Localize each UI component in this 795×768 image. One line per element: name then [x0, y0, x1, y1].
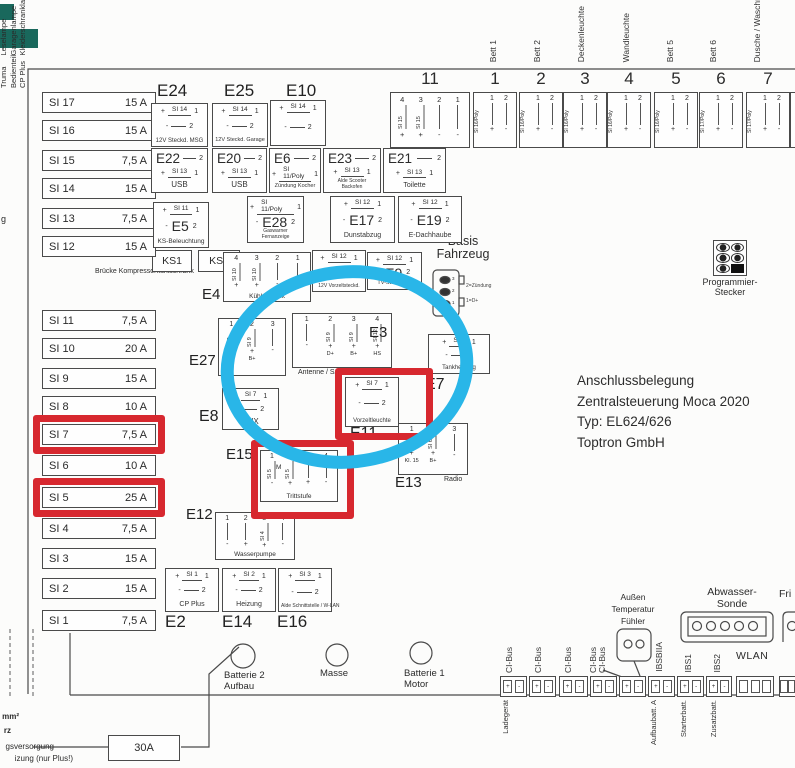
e-box-label-E15: E15: [226, 446, 253, 463]
fuse-ref: SI 16/Poly: [565, 99, 571, 133]
fuse-row-SI10: SI 1020 A: [42, 338, 156, 359]
connector-pin-col: 1-: [295, 316, 319, 357]
pin-number: 2: [638, 95, 642, 102]
connector-pin-col: 4SI 15+: [393, 95, 412, 145]
ibsb-label: IBSBIIA: [655, 642, 664, 672]
pin-number: 1: [318, 573, 322, 580]
battery2-terminal: [231, 644, 255, 668]
e-box-label: E21: [388, 152, 412, 166]
ibs1-label: IBS1: [684, 654, 693, 672]
room-label-Deckenleuchte: Deckenleuchte: [577, 6, 586, 62]
connector-pin-col: 4-: [274, 515, 293, 549]
wire-line-vertical: [306, 324, 307, 341]
plus-sign: +: [234, 393, 238, 400]
fuse-row-SI15: SI 157,5 A: [42, 150, 156, 171]
bus-slot-plus: +: [503, 680, 512, 693]
pin-bottom-label: D+: [327, 351, 334, 357]
pin-sign: +: [624, 126, 628, 133]
pin-number: 1: [205, 573, 209, 580]
title-line-3: Typ: EL624/626: [577, 412, 750, 433]
pin-sign: +: [352, 343, 356, 350]
e-box-label-E10: E10: [286, 81, 316, 101]
plus-sign: +: [161, 108, 165, 115]
pin-number: 2: [312, 155, 316, 162]
battery1-terminal: [410, 642, 432, 664]
pin-number: 1: [305, 316, 309, 323]
pin-sign: +: [431, 450, 435, 457]
fuse-amp: 15 A: [125, 553, 147, 565]
basis-fahrzeug-connector: [433, 270, 464, 316]
e-box-E18: +SI 121-E18212V Vorzeltsteckd.: [312, 250, 366, 292]
top-outlet-6: SI 17/Poly1+2-: [699, 92, 743, 148]
pin-row-1: +SI 131: [154, 169, 205, 178]
e-box-E5: +SI 111-E52KS-Beleuchtung: [153, 202, 209, 248]
top-connector-11-number: 11: [390, 69, 470, 89]
plus-sign: +: [163, 207, 167, 214]
fuse-ref: SI 9: [228, 329, 236, 347]
pin-number: 2: [199, 155, 203, 162]
ci-bus-label: CI-Bus: [598, 647, 607, 673]
bus-below-label: Aufbaubatt. A: [650, 700, 658, 745]
room-label-Dusche-Waschr: Dusche / Waschr: [753, 0, 762, 62]
e-box-E17: +SI 121-E172Dunstabzug: [330, 196, 395, 243]
pin-row-2: -2: [431, 352, 487, 359]
basis-pin-2: 2: [452, 288, 455, 293]
fuse-id: SI 1: [49, 615, 69, 627]
fuse-amp: 15 A: [125, 125, 147, 137]
cut-text-heizung: izung (nur Plus!): [0, 754, 73, 763]
pin-sign: -: [551, 126, 553, 133]
fuse-ref: SI 10: [233, 263, 241, 281]
fuse-id: SI 6: [49, 460, 69, 472]
pin-row-1: +SI 141: [273, 104, 323, 113]
minus-sign: -: [319, 270, 321, 277]
pin-number: 1: [716, 95, 720, 102]
wire-line: [242, 409, 257, 410]
e-box-E23: E232+SI 131Alde Scooter Backofen: [323, 148, 381, 193]
pin-number: 3: [255, 255, 259, 262]
aussen-temperatur-label: Außen Temperatur Fühler: [592, 591, 674, 627]
fuse-ref: SI 13: [168, 169, 191, 178]
basis-pin-1: 1: [452, 300, 455, 305]
fuse-ref: SI 11/Poly: [257, 200, 294, 215]
plus-sign: +: [221, 170, 225, 177]
pin-row-1: +SI 131: [326, 168, 378, 177]
minus-sign: -: [256, 219, 258, 226]
pin-number: 2: [291, 219, 295, 226]
fuse-id: SI 2: [49, 583, 69, 595]
pin-number: 2: [328, 316, 332, 323]
pin-sign: +: [328, 343, 332, 350]
pin-sign: -: [686, 126, 688, 133]
e-box-caption: Gaswarner Fernanzeige: [258, 229, 294, 240]
connector-pin-col: 3SI 4+: [255, 515, 274, 549]
bus-slot-plus: +: [651, 680, 660, 693]
pin-sign: -: [297, 281, 299, 288]
fuse-amp: 15 A: [125, 373, 147, 385]
wire-line-vertical: [439, 105, 440, 129]
plus-sign: +: [320, 255, 324, 262]
fuse-amp: 15 A: [125, 241, 147, 253]
wire-line-vertical: [732, 103, 733, 125]
pin-row-2: -E192: [401, 213, 459, 227]
fuse-id: SI 17: [49, 97, 75, 109]
pin-bottom-label: B+: [249, 356, 256, 362]
top-connector-11: 4SI 15+3SI 15+2-1-: [390, 92, 470, 148]
pin-number: 2: [730, 95, 734, 102]
bus-slot-minus: -: [605, 680, 614, 693]
ibs2-label: IBS2: [713, 654, 722, 672]
pin-number: 1: [624, 95, 628, 102]
wire-line: [244, 158, 255, 159]
plus-sign: +: [161, 170, 165, 177]
e-box-E27: 1SI 9+D+2SI 9+B+3-: [218, 318, 286, 376]
pin-number: 2: [250, 321, 254, 328]
fuse-amp: 7,5 A: [122, 315, 147, 327]
top-outlet-2: SI 16/Poly1+2-: [519, 92, 563, 148]
pin-bottom-label: D+: [228, 356, 235, 362]
pin-number: 1: [671, 95, 675, 102]
fuse-ref: SI 12: [419, 200, 442, 209]
pin-number: 1: [429, 170, 433, 177]
battery1-label: Batterie 1 Motor: [404, 668, 445, 690]
fuse-ref: SI 16/Poly: [521, 99, 527, 133]
fuse-row-SI1: SI 17,5 A: [42, 610, 156, 631]
minus-sign: -: [291, 589, 293, 596]
e-box-caption: Tankheizung: [431, 365, 487, 371]
room-label-Bett-2: Bett 2: [533, 40, 542, 62]
room-label-Bett-5: Bett 5: [666, 40, 675, 62]
wire-line: [171, 126, 186, 127]
e-box-E16: +SI 31-2Alde Schnittstelle / W-LAN: [278, 568, 332, 612]
pin-number: 2: [469, 352, 473, 359]
pin-number: 2: [202, 587, 206, 594]
e-box-caption-E13: Radio: [444, 476, 462, 483]
fuse-row-SI14: SI 1415 A: [42, 178, 156, 199]
wire-line-vertical: [492, 103, 493, 125]
pin-row-1: +SI 121: [370, 256, 419, 265]
e-box-E2: +SI 11-2CP Plus: [165, 568, 219, 612]
plus-sign: +: [396, 170, 400, 177]
plus-sign: +: [250, 204, 254, 211]
connector-pin-col: 2-: [772, 95, 786, 145]
pin-row-2: -2: [168, 587, 216, 594]
e-box-E24: +SI 141-212V Steckd. MSG: [151, 103, 208, 147]
pin-number: 2: [372, 155, 376, 162]
plus-sign: +: [376, 257, 380, 264]
bus-below-label-line: Truma: [0, 55, 9, 88]
connector-pin-col: 1+: [758, 95, 772, 145]
wire-line-vertical: [673, 103, 674, 125]
red-annotation-si5: [33, 478, 165, 517]
wire-line-vertical: [245, 523, 246, 540]
pin-sign: +: [763, 126, 767, 133]
wire-line: [417, 158, 432, 159]
e-box-E12: 1-2+3SI 4+4-Wasserpumpe: [215, 512, 295, 560]
bus-slot: [762, 680, 771, 693]
pin-sign: -: [778, 126, 780, 133]
top-outlet-number-1: 1: [473, 69, 517, 89]
pin-number: 2: [446, 217, 450, 224]
pin-number: 1: [263, 393, 267, 400]
pin-number: 2: [193, 223, 197, 230]
pin-number: 3: [271, 321, 275, 328]
bus-slot-plus: +: [709, 680, 718, 693]
e-box-caption: Alde Scooter Backofen: [336, 179, 368, 190]
pin-number: 2: [437, 95, 441, 104]
connector-pin-col: 1+: [711, 95, 725, 145]
connector-pin-col: 2-: [725, 95, 739, 145]
pin-number: 1: [297, 204, 301, 211]
pin-sign: +: [375, 343, 379, 350]
wire-line-vertical: [765, 103, 766, 125]
room-label-line: Kleiderschrankla: [19, 0, 28, 55]
e-box-label-E4: E4: [202, 286, 220, 303]
wire-line-vertical: [552, 103, 553, 125]
connector-pin-col: 1+: [575, 95, 589, 145]
pin-number: 1: [456, 95, 460, 104]
bus-connector-3: +-: [559, 676, 588, 697]
fuse-row-SI11: SI 117,5 A: [42, 310, 156, 331]
bus-below-label-line: CP Plus: [19, 55, 28, 88]
connector-pin-col: 3-: [262, 321, 283, 365]
pin-number: 4: [375, 316, 379, 323]
pin-sign: -: [438, 130, 441, 139]
pin-number: 1: [536, 95, 540, 102]
e-box-caption: 12V Steckd. Garage: [215, 138, 265, 144]
cut-text-g: g: [1, 214, 6, 224]
pin-row-1: +SI 121: [315, 254, 363, 263]
plus-sign: +: [272, 171, 276, 178]
room-label-Wandleuchte: Wandleuchte: [622, 13, 631, 62]
e-box-label: E18: [326, 266, 351, 280]
pin-bottom-label: B+: [430, 458, 437, 464]
bus-slot-minus: -: [692, 680, 701, 693]
connector-pin-col: 1+: [666, 95, 680, 145]
fuse-30a-label: 30A: [134, 742, 154, 754]
frischwasser-label-cut: Fri: [779, 588, 791, 600]
minus-sign: -: [410, 217, 412, 224]
e-box-E22: E222+SI 131USB: [151, 148, 208, 193]
abwasser-sonde-label: Abwasser- Sonde: [690, 586, 774, 610]
pin-number: 4: [400, 95, 404, 104]
wire-line: [232, 126, 247, 127]
pin-sign: -: [226, 541, 228, 548]
prog-pin: [731, 243, 745, 252]
cut-text-mm2: mm²: [0, 712, 19, 721]
pin-number: 2: [594, 95, 598, 102]
pin-row-2: -E172: [333, 213, 392, 227]
plus-sign: +: [333, 169, 337, 176]
red-annotation-e15: [251, 440, 354, 519]
pin-row-1: +SI 131: [386, 170, 443, 179]
top-outlet-number-5: 5: [654, 69, 698, 89]
fuse-amp: 15 A: [125, 97, 147, 109]
pin-number: 2: [258, 155, 262, 162]
top-outlet-number-4: 4: [607, 69, 651, 89]
plus-sign: +: [344, 201, 348, 208]
e-box-caption: E-Dachhaube: [401, 232, 459, 240]
pin-sign: +: [262, 542, 266, 549]
e-box-label-E27: E27: [189, 352, 216, 369]
e-box-label: E9: [385, 266, 402, 280]
e-box-caption: Alde Schnittstelle / W-LAN: [281, 604, 329, 609]
fuse-ref: SI 4: [261, 523, 269, 541]
ks1-box: KS1: [152, 250, 192, 272]
programmier-stecker-caption: Programmier- Stecker: [686, 277, 774, 297]
masse-terminal: [326, 644, 348, 666]
e-box-E20: E202+SI 131USB: [212, 148, 267, 193]
e-box-label-E12: E12: [186, 506, 213, 523]
fuse-amp: 15 A: [125, 183, 147, 195]
fuse-ref: SI 1: [182, 572, 202, 581]
e-box-label-E13: E13: [395, 474, 422, 491]
ks1-label: KS1: [162, 255, 182, 267]
top-outlet-5: SI 16/Poly1+2-: [654, 92, 698, 148]
e-box-label: E19: [417, 213, 442, 227]
connector-pin-col: 1-: [218, 515, 237, 549]
pin-row-1: +SI 11/Poly1: [272, 167, 318, 182]
plus-sign: +: [279, 105, 283, 112]
pin-sign: +: [250, 348, 254, 355]
e-box-E21: E212+SI 131Toilette: [383, 148, 446, 193]
fuse-id: SI 10: [49, 343, 75, 355]
top-outlet-1: SI 16/Poly1+2-: [473, 92, 517, 148]
bus-connector-8: +-: [706, 676, 732, 697]
pin-sign: +: [490, 126, 494, 133]
wire-line-vertical: [687, 103, 688, 125]
minus-sign: -: [445, 352, 447, 359]
connector-pin-col: 3SI 9+B+: [342, 316, 366, 357]
bus-slot: [788, 680, 795, 693]
pin-number: 2: [259, 587, 263, 594]
bus-connector-2: +-: [529, 676, 556, 697]
fuse-ref: SI 14: [229, 107, 252, 116]
fuse-amp: 20 A: [125, 343, 147, 355]
connector-pin-col: 2-: [499, 95, 513, 145]
connector-pin-col: 3SI 15+: [412, 95, 431, 145]
pin-row-1: +SI 141: [154, 107, 205, 116]
bus-below-label: Starterbatt.: [680, 700, 688, 737]
pin-number: 1: [445, 201, 449, 208]
pin-row-1: +SI 31: [281, 572, 329, 581]
bus-slot-minus: -: [575, 680, 584, 693]
pin-row-1: +SI 71: [225, 392, 276, 401]
e-box-E25: +SI 141-212V Steckd. Garage: [212, 103, 268, 147]
fuse-row-SI12: SI 1215 A: [42, 236, 156, 257]
pin-number: 2: [189, 123, 193, 130]
wire-line-vertical: [454, 434, 455, 451]
fuse-ref: SI 14: [168, 107, 191, 116]
fuse-id: SI 15: [49, 155, 75, 167]
connector-pin-col: 2-: [680, 95, 694, 145]
e-box-E14: +SI 21-2Heizung: [222, 568, 276, 612]
pin-number: 1: [472, 339, 476, 346]
pin-row-2: E202: [215, 152, 264, 166]
fuse-ref: SI 13: [341, 168, 364, 177]
fuse-ref: SI 12: [383, 256, 406, 265]
dashed-left-lines: [10, 629, 33, 699]
top-outlet-4: SI 16/Poly1+2-: [607, 92, 651, 148]
fuse-ref: SI 2: [239, 572, 259, 581]
bus-connector-7: +-: [677, 676, 704, 697]
fuse-amp: 7,5 A: [122, 213, 147, 225]
top-outlet-number-2: 2: [519, 69, 563, 89]
fuse-id: SI 3: [49, 553, 69, 565]
pin-number: 1: [367, 169, 371, 176]
fuse-id: SI 14: [49, 183, 75, 195]
e-box-E6: E62+SI 11/Poly1Zündung Kocher: [269, 148, 321, 193]
bus-slot-plus: +: [593, 680, 602, 693]
e-box-caption-E4: Kühlschrank: [224, 293, 310, 300]
pin-sign: +: [716, 126, 720, 133]
minus-sign: -: [166, 123, 168, 130]
pin-sign: -: [731, 126, 733, 133]
wire-line-vertical: [282, 523, 283, 540]
fuse-ref: SI 15: [417, 105, 425, 129]
minus-sign: -: [178, 587, 180, 594]
ci-bus-label: CI-Bus: [564, 647, 573, 673]
bus-slot-minus: -: [634, 680, 643, 693]
basis-note-zuendung: 2=Zündung: [466, 283, 491, 289]
pin-number: 1: [409, 257, 413, 264]
plus-sign: +: [442, 339, 446, 346]
e-box-E7: +SI 81-2Tankheizung: [428, 334, 490, 374]
bus-slot-plus: +: [680, 680, 689, 693]
pin-row-1: +SI 121: [333, 200, 392, 209]
battery-wire: [33, 647, 239, 747]
e-box-label: E17: [349, 213, 374, 227]
pin-sign: +: [410, 450, 414, 457]
pin-number: 2: [406, 269, 410, 276]
fuse-id: SI 4: [49, 523, 69, 535]
connector-pin-col: 4SI 10+: [226, 255, 247, 291]
pin-row-1: +SI 111: [156, 206, 206, 215]
e-box-label-E25: E25: [224, 81, 254, 101]
top-outlet-number-7: 7: [746, 69, 790, 89]
basis-note-dplus: 1=D+: [466, 298, 478, 304]
pin-sign: +: [536, 126, 540, 133]
e-box-caption: AUX: [225, 418, 276, 427]
pin-number: 3: [452, 426, 456, 433]
battery2-label: Batterie 2 Aufbau: [224, 670, 265, 692]
title-line-1: Anschlussbelegung: [577, 371, 750, 392]
minus-sign: -: [165, 223, 167, 230]
e-box-caption: KS-Beleuchtung: [156, 238, 206, 245]
bus-slot-minus: -: [720, 680, 729, 693]
pin-sign: -: [505, 126, 507, 133]
masse-label: Masse: [320, 668, 348, 679]
e-box-caption: 12V Steckd. MSG: [154, 138, 205, 144]
plus-sign: +: [175, 573, 179, 580]
room-label-Bett-6: Bett 6: [709, 40, 718, 62]
connector-pin-col: 3-: [444, 426, 465, 464]
bus-slot: [739, 680, 748, 693]
connector-pin-col: 1+: [619, 95, 633, 145]
pin-row-2: -E92: [370, 266, 419, 280]
pin-number: 2: [777, 95, 781, 102]
fuse-ref: SI 10: [253, 263, 261, 281]
prog-pin: [731, 253, 745, 262]
pin-sign: +: [419, 130, 423, 139]
connector-pin-col: 2+: [237, 515, 256, 549]
frischwasser-connector-cut: [783, 612, 795, 642]
bus-connector-4: +-: [590, 676, 617, 697]
pin-number: 2: [244, 515, 248, 522]
pin-sign: -: [457, 130, 460, 139]
wire-line-vertical: [626, 103, 627, 125]
e-box-label-E16: E16: [277, 612, 307, 632]
